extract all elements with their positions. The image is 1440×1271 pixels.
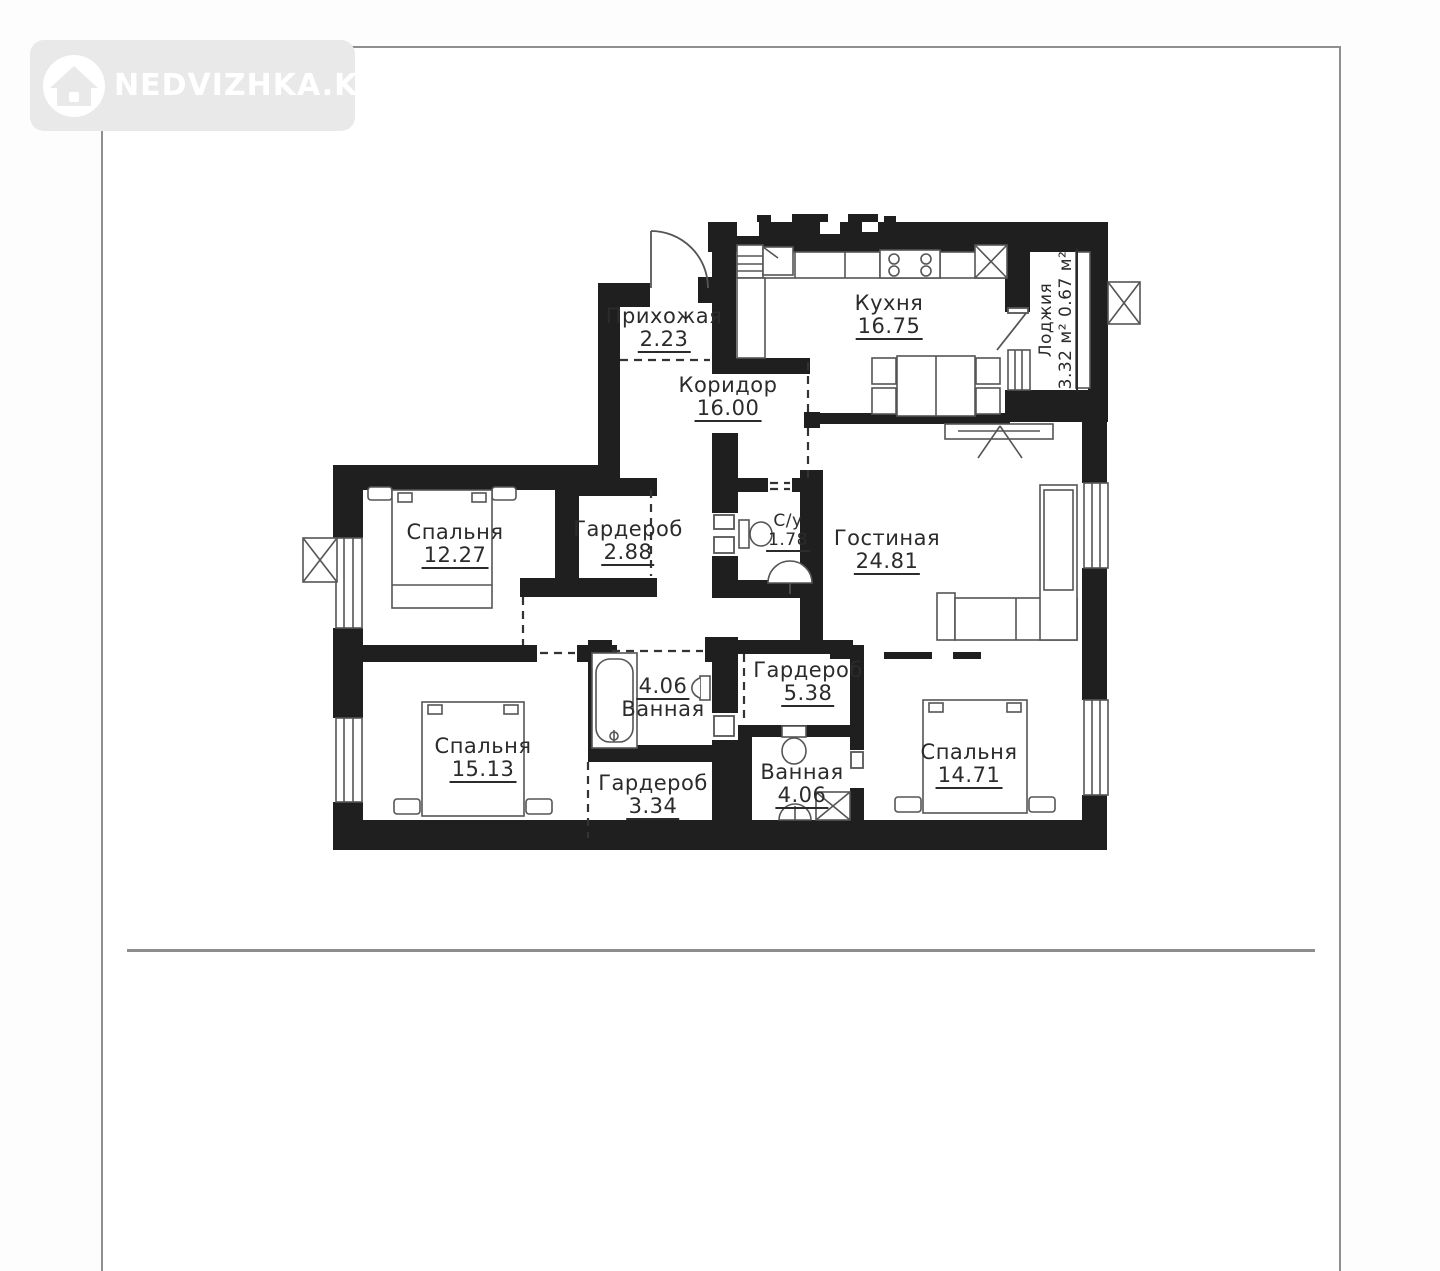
room-label-bedroom-12: Спальня 12.27 xyxy=(407,521,504,567)
screenshot-stage: NEDVIZHKA.KZ xyxy=(0,0,1440,1271)
window-right-bedroom xyxy=(1084,700,1108,795)
room-label-living: Гостиная 24.81 xyxy=(834,527,940,573)
room-label-wc: С/у 1.78 xyxy=(766,512,810,550)
site-logo: NEDVIZHKA.KZ xyxy=(30,40,355,131)
toilet-bath2-icon xyxy=(782,726,806,764)
window-left-2 xyxy=(336,718,362,802)
fridge-icon xyxy=(975,245,1007,278)
page-divider-line xyxy=(127,949,1315,952)
balcony-door-icon xyxy=(997,308,1028,350)
house-icon xyxy=(42,54,106,118)
room-label-wardrobe-288: Гардероб 2.88 xyxy=(573,518,683,564)
room-label-bath-2: Ванная 4.06 xyxy=(760,761,843,807)
site-logo-text: NEDVIZHKA.KZ xyxy=(114,68,381,103)
room-label-hallway: Прихожая 2.23 xyxy=(606,305,722,351)
ac-unit-right-icon xyxy=(1108,282,1140,324)
room-label-wardrobe-334: Гардероб 3.34 xyxy=(598,772,708,818)
room-label-corridor: Коридор 16.00 xyxy=(679,374,778,420)
room-label-loggia: Лоджия 3.32 м² 0.67 м² xyxy=(1036,249,1076,392)
room-label-bedroom-15: Спальня 15.13 xyxy=(435,735,532,781)
door-frame-bath1 xyxy=(714,716,734,736)
sofa-icon xyxy=(937,485,1077,640)
room-label-bath-1: 4.06 Ванная xyxy=(621,675,704,721)
window-left-1 xyxy=(336,538,362,628)
room-label-kitchen: Кухня 16.75 xyxy=(855,292,924,338)
stove-icon xyxy=(880,250,940,278)
room-label-bedroom-14: Спальня 14.71 xyxy=(921,741,1018,787)
window-right-living xyxy=(1084,483,1108,568)
loggia-bench-icon xyxy=(1076,252,1090,388)
door-frame-wc xyxy=(714,515,734,529)
ac-unit-left-icon xyxy=(303,538,337,582)
room-label-wardrobe-538: Гардероб 5.38 xyxy=(753,659,863,705)
tv-unit-icon xyxy=(945,424,1053,458)
window-loggia xyxy=(1008,350,1030,390)
door-frame-wc2 xyxy=(714,537,734,553)
door-frame-bath2 xyxy=(851,752,863,768)
dining-table-icon xyxy=(872,356,1000,416)
